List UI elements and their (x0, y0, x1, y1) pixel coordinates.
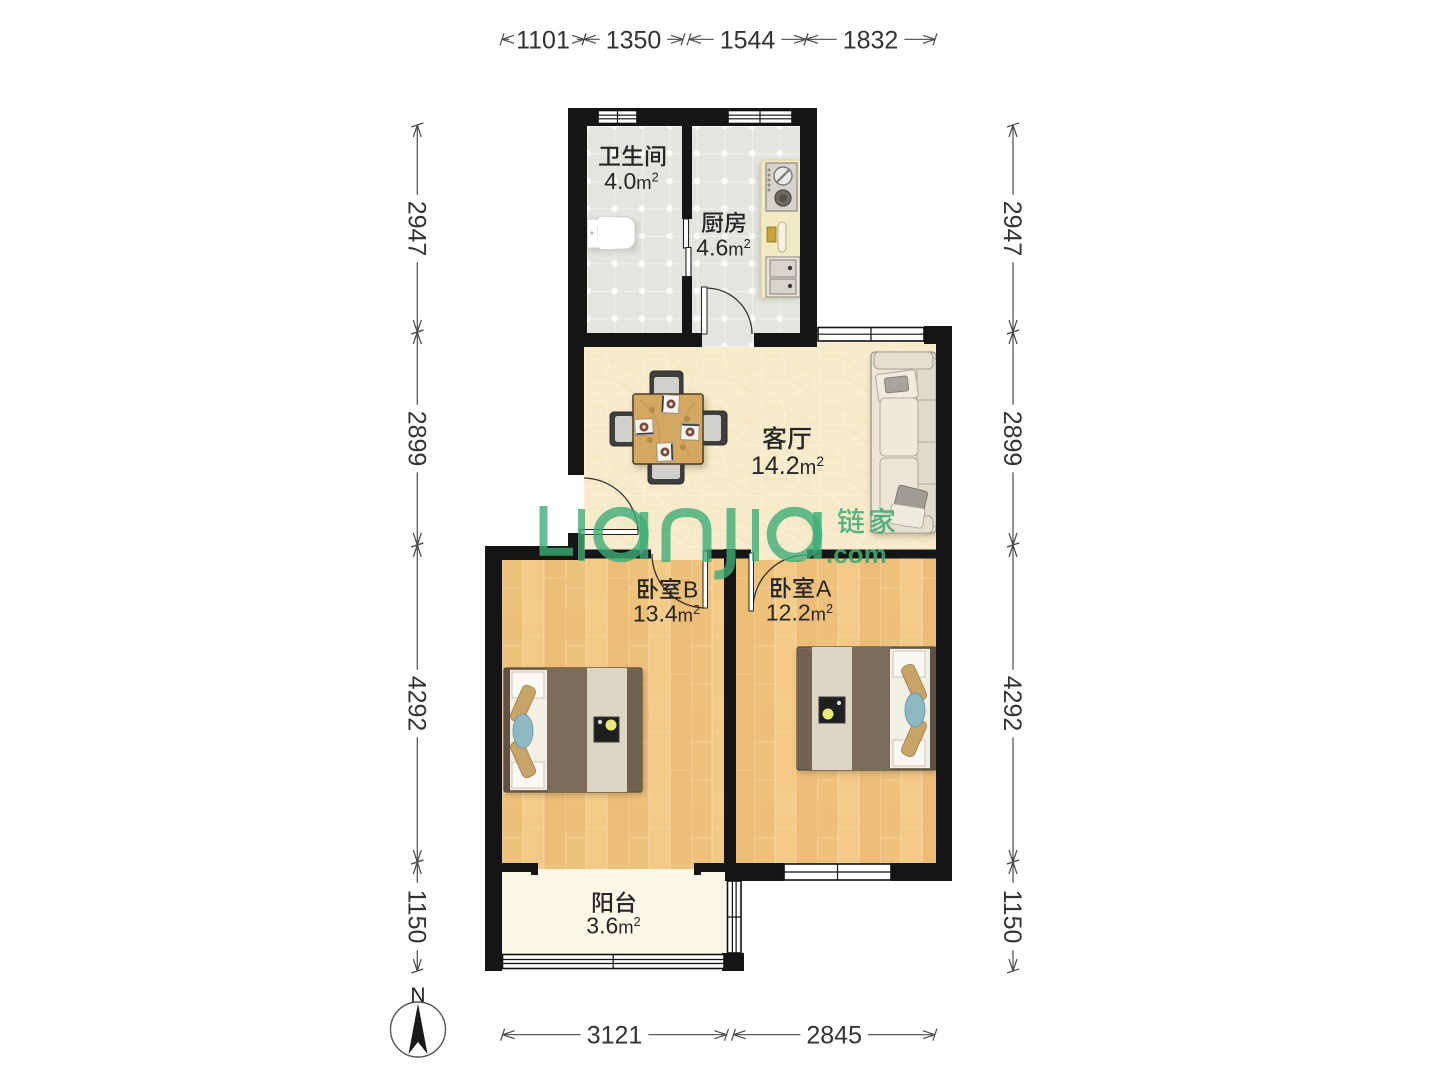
svg-text:1544: 1544 (720, 26, 776, 54)
svg-text:1150: 1150 (998, 890, 1026, 944)
svg-text:4.0m2: 4.0m2 (604, 168, 658, 194)
svg-text:.com: .com (826, 539, 887, 569)
svg-text:3.6m2: 3.6m2 (586, 913, 640, 939)
svg-text:1101: 1101 (516, 26, 570, 54)
svg-text:2845: 2845 (806, 1022, 862, 1050)
svg-text:2899: 2899 (402, 411, 430, 467)
svg-text:4292: 4292 (998, 676, 1026, 732)
svg-text:3121: 3121 (587, 1022, 643, 1050)
svg-text:4.6m2: 4.6m2 (696, 235, 750, 261)
svg-text:2947: 2947 (998, 201, 1026, 257)
svg-text:14.2m2: 14.2m2 (751, 452, 824, 480)
svg-text:2947: 2947 (402, 201, 430, 257)
svg-text:2899: 2899 (998, 411, 1026, 467)
svg-text:4292: 4292 (402, 676, 430, 732)
svg-text:1832: 1832 (843, 26, 899, 54)
svg-text:1150: 1150 (402, 890, 430, 944)
svg-text:B: B (683, 577, 698, 603)
svg-text:1350: 1350 (606, 26, 662, 54)
svg-text:A: A (816, 576, 832, 602)
svg-text:13.4m2: 13.4m2 (633, 601, 700, 627)
svg-text:12.2m2: 12.2m2 (766, 600, 833, 626)
